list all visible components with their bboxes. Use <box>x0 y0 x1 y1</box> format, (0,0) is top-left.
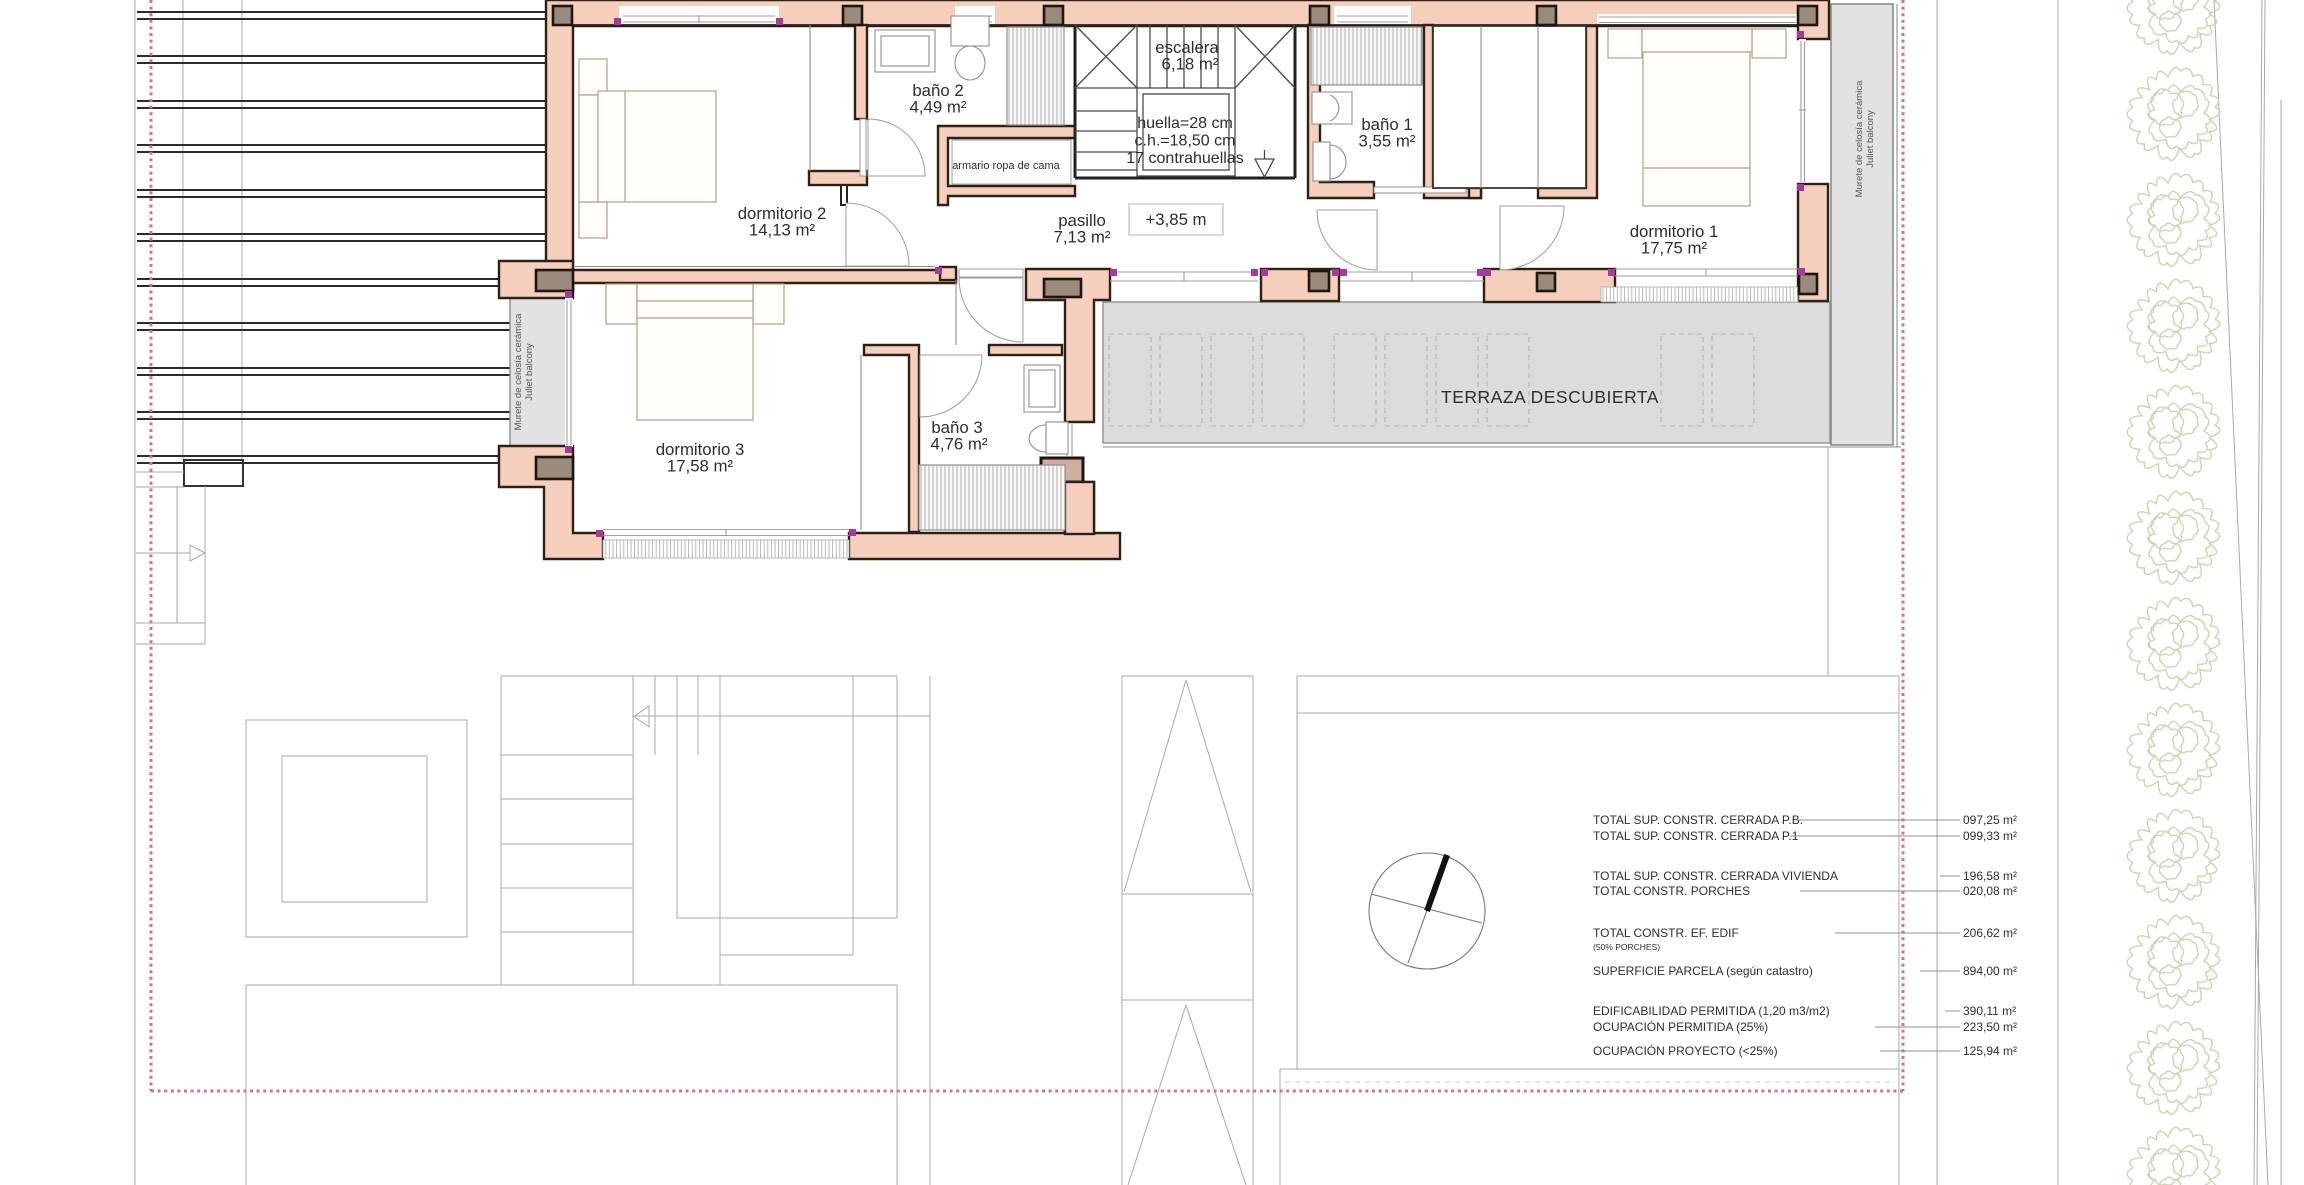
svg-text:390,11 m²: 390,11 m² <box>1963 1004 2016 1018</box>
svg-text:223,50 m²: 223,50 m² <box>1963 1020 2017 1034</box>
svg-text:3,55 m²: 3,55 m² <box>1359 132 1416 151</box>
svg-text:020,08 m²: 020,08 m² <box>1963 884 2017 898</box>
svg-text:17,58 m²: 17,58 m² <box>667 457 734 476</box>
svg-text:TOTAL CONSTR. EF. EDIF: TOTAL CONSTR. EF. EDIF <box>1593 926 1739 940</box>
svg-text:huella=28 cm: huella=28 cm <box>1137 115 1233 132</box>
svg-text:4,49 m²: 4,49 m² <box>910 98 967 117</box>
svg-text:(50% PORCHES): (50% PORCHES) <box>1593 942 1660 952</box>
svg-text:4,76 m²: 4,76 m² <box>931 435 988 454</box>
svg-text:206,62 m²: 206,62 m² <box>1963 926 2017 940</box>
svg-text:SUPERFICIE PARCELA (según cata: SUPERFICIE PARCELA (según catastro) <box>1593 964 1813 978</box>
svg-text:6,18 m²: 6,18 m² <box>1162 55 1219 74</box>
svg-text:OCUPACIÓN PERMITIDA (25%): OCUPACIÓN PERMITIDA (25%) <box>1593 1019 1768 1034</box>
svg-text:OCUPACIÓN PROYECTO (<25%): OCUPACIÓN PROYECTO (<25%) <box>1593 1043 1778 1058</box>
svg-text:armario ropa de cama: armario ropa de cama <box>952 160 1060 172</box>
svg-text:7,13 m²: 7,13 m² <box>1054 228 1111 247</box>
svg-text:125,94 m²: 125,94 m² <box>1963 1044 2017 1058</box>
svg-text:196,58 m²: 196,58 m² <box>1963 869 2017 883</box>
svg-text:17,75 m²: 17,75 m² <box>1641 239 1708 258</box>
svg-text:894,00 m²: 894,00 m² <box>1963 964 2017 978</box>
svg-text:TOTAL SUP. CONSTR. CERRADA P.B: TOTAL SUP. CONSTR. CERRADA P.B. <box>1593 813 1803 827</box>
svg-text:14,13 m²: 14,13 m² <box>749 221 816 240</box>
svg-text:17 contrahuellas: 17 contrahuellas <box>1126 150 1243 167</box>
svg-text:TOTAL CONSTR. PORCHES: TOTAL CONSTR. PORCHES <box>1593 884 1750 898</box>
svg-text:099,33 m²: 099,33 m² <box>1963 829 2017 843</box>
svg-text:TOTAL SUP. CONSTR. CERRADA VIV: TOTAL SUP. CONSTR. CERRADA VIVIENDA <box>1593 869 1838 883</box>
svg-text:TOTAL SUP. CONSTR. CERRADA P.1: TOTAL SUP. CONSTR. CERRADA P.1 <box>1593 829 1799 843</box>
svg-text:c.h.=18,50 cm: c.h.=18,50 cm <box>1135 133 1236 150</box>
svg-text:097,25 m²: 097,25 m² <box>1963 813 2017 827</box>
svg-text:+3,85 m: +3,85 m <box>1145 210 1206 229</box>
svg-text:TERRAZA DESCUBIERTA: TERRAZA DESCUBIERTA <box>1441 387 1659 407</box>
svg-text:EDIFICABILIDAD PERMITIDA (1,20: EDIFICABILIDAD PERMITIDA (1,20 m3/m2) <box>1593 1004 1830 1018</box>
